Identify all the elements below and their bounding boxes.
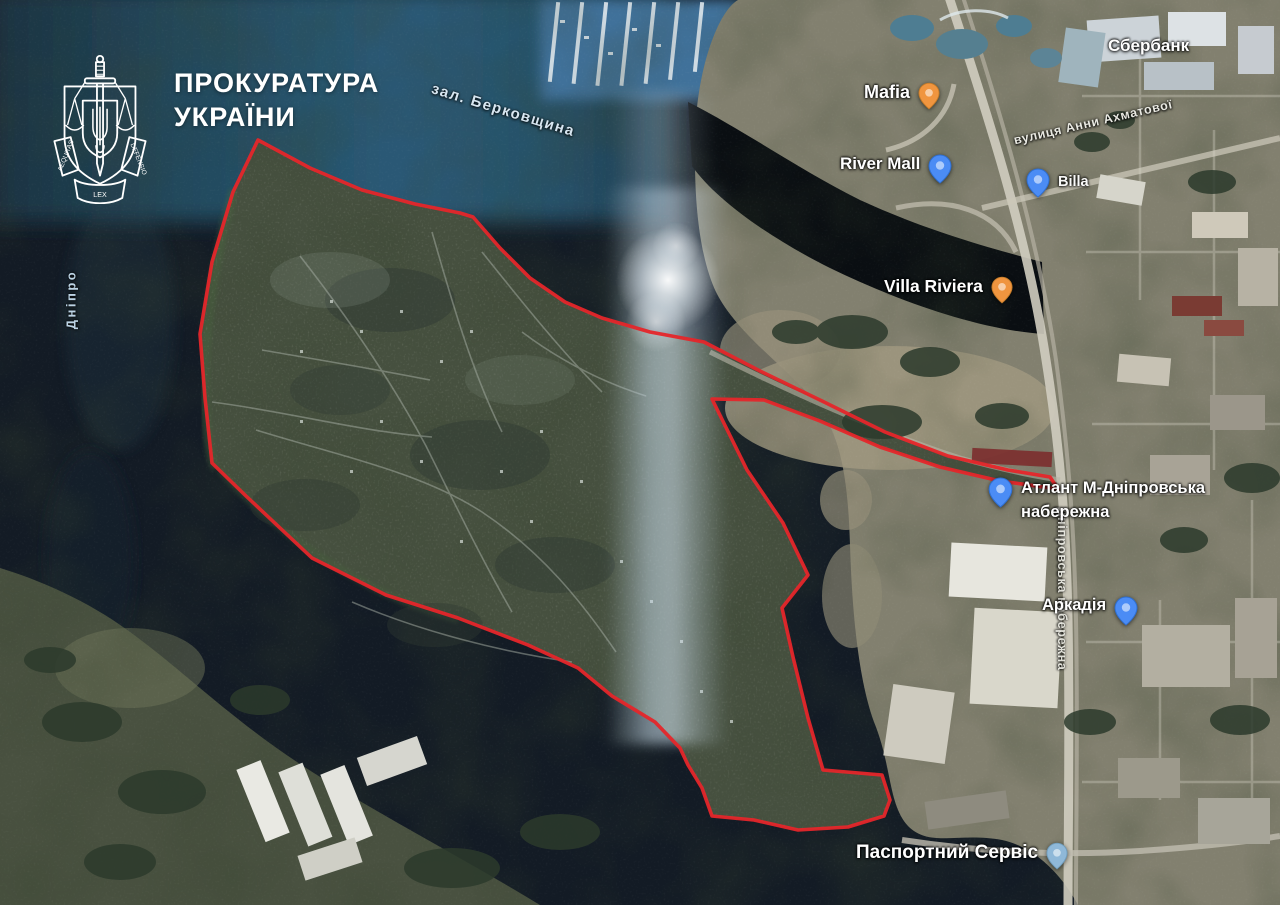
shopping-pin-icon[interactable] [928, 154, 952, 184]
poi-mafia[interactable]: Mafia [864, 82, 940, 110]
shopping-pin-icon[interactable] [1026, 168, 1050, 198]
river-label: Дніпро [64, 254, 79, 346]
screenshot: зал. Берковщина Дніпро вулиця Анни Ахмат… [0, 0, 1280, 905]
lodging-pin-icon[interactable] [991, 276, 1013, 304]
poi-atlant[interactable]: Атлант М-Дніпровська набережна [988, 477, 1235, 525]
poi-passport-service-label: Паспортний Сервіс [856, 842, 1038, 864]
poi-river-mall-label: River Mall [840, 154, 920, 174]
poi-billa[interactable]: Billa [1026, 168, 1089, 198]
glare-band [606, 92, 728, 744]
poi-sberbank[interactable]: Сбербанк [1108, 36, 1189, 56]
poi-villa-riviera[interactable]: Villa Riviera [884, 276, 1013, 304]
poi-sberbank-label: Сбербанк [1108, 36, 1189, 56]
watermark-title-line2: УКРАЇНИ [174, 100, 379, 134]
watermark: AEQUITAS LEX DEFENSIO ПРОКУРАТУРА УКРАЇН… [44, 52, 379, 204]
poi-atlant-label: Атлант М-Дніпровська набережна [1021, 477, 1235, 525]
prosecutors-office-emblem: AEQUITAS LEX DEFENSIO [44, 52, 156, 204]
watermark-title: ПРОКУРАТУРА УКРАЇНИ [174, 66, 379, 134]
poi-river-mall[interactable]: River Mall [840, 154, 952, 184]
poi-passport-service[interactable]: Паспортний Сервіс [856, 842, 1068, 870]
poi-mafia-label: Mafia [864, 82, 910, 103]
motto-lex: LEX [93, 191, 107, 199]
restaurant-pin-icon[interactable] [918, 82, 940, 110]
poi-billa-label: Billa [1058, 174, 1089, 190]
shopping-pin-icon[interactable] [988, 477, 1013, 508]
motto-aequitas: AEQUITAS [57, 139, 76, 173]
service-pin-icon[interactable] [1046, 842, 1068, 870]
shopping-pin-icon[interactable] [1114, 596, 1138, 626]
poi-arkadia[interactable]: Аркадія [1042, 596, 1138, 626]
poi-villa-riviera-label: Villa Riviera [884, 276, 983, 297]
watermark-title-line1: ПРОКУРАТУРА [174, 66, 379, 100]
poi-arkadia-label: Аркадія [1042, 596, 1106, 615]
